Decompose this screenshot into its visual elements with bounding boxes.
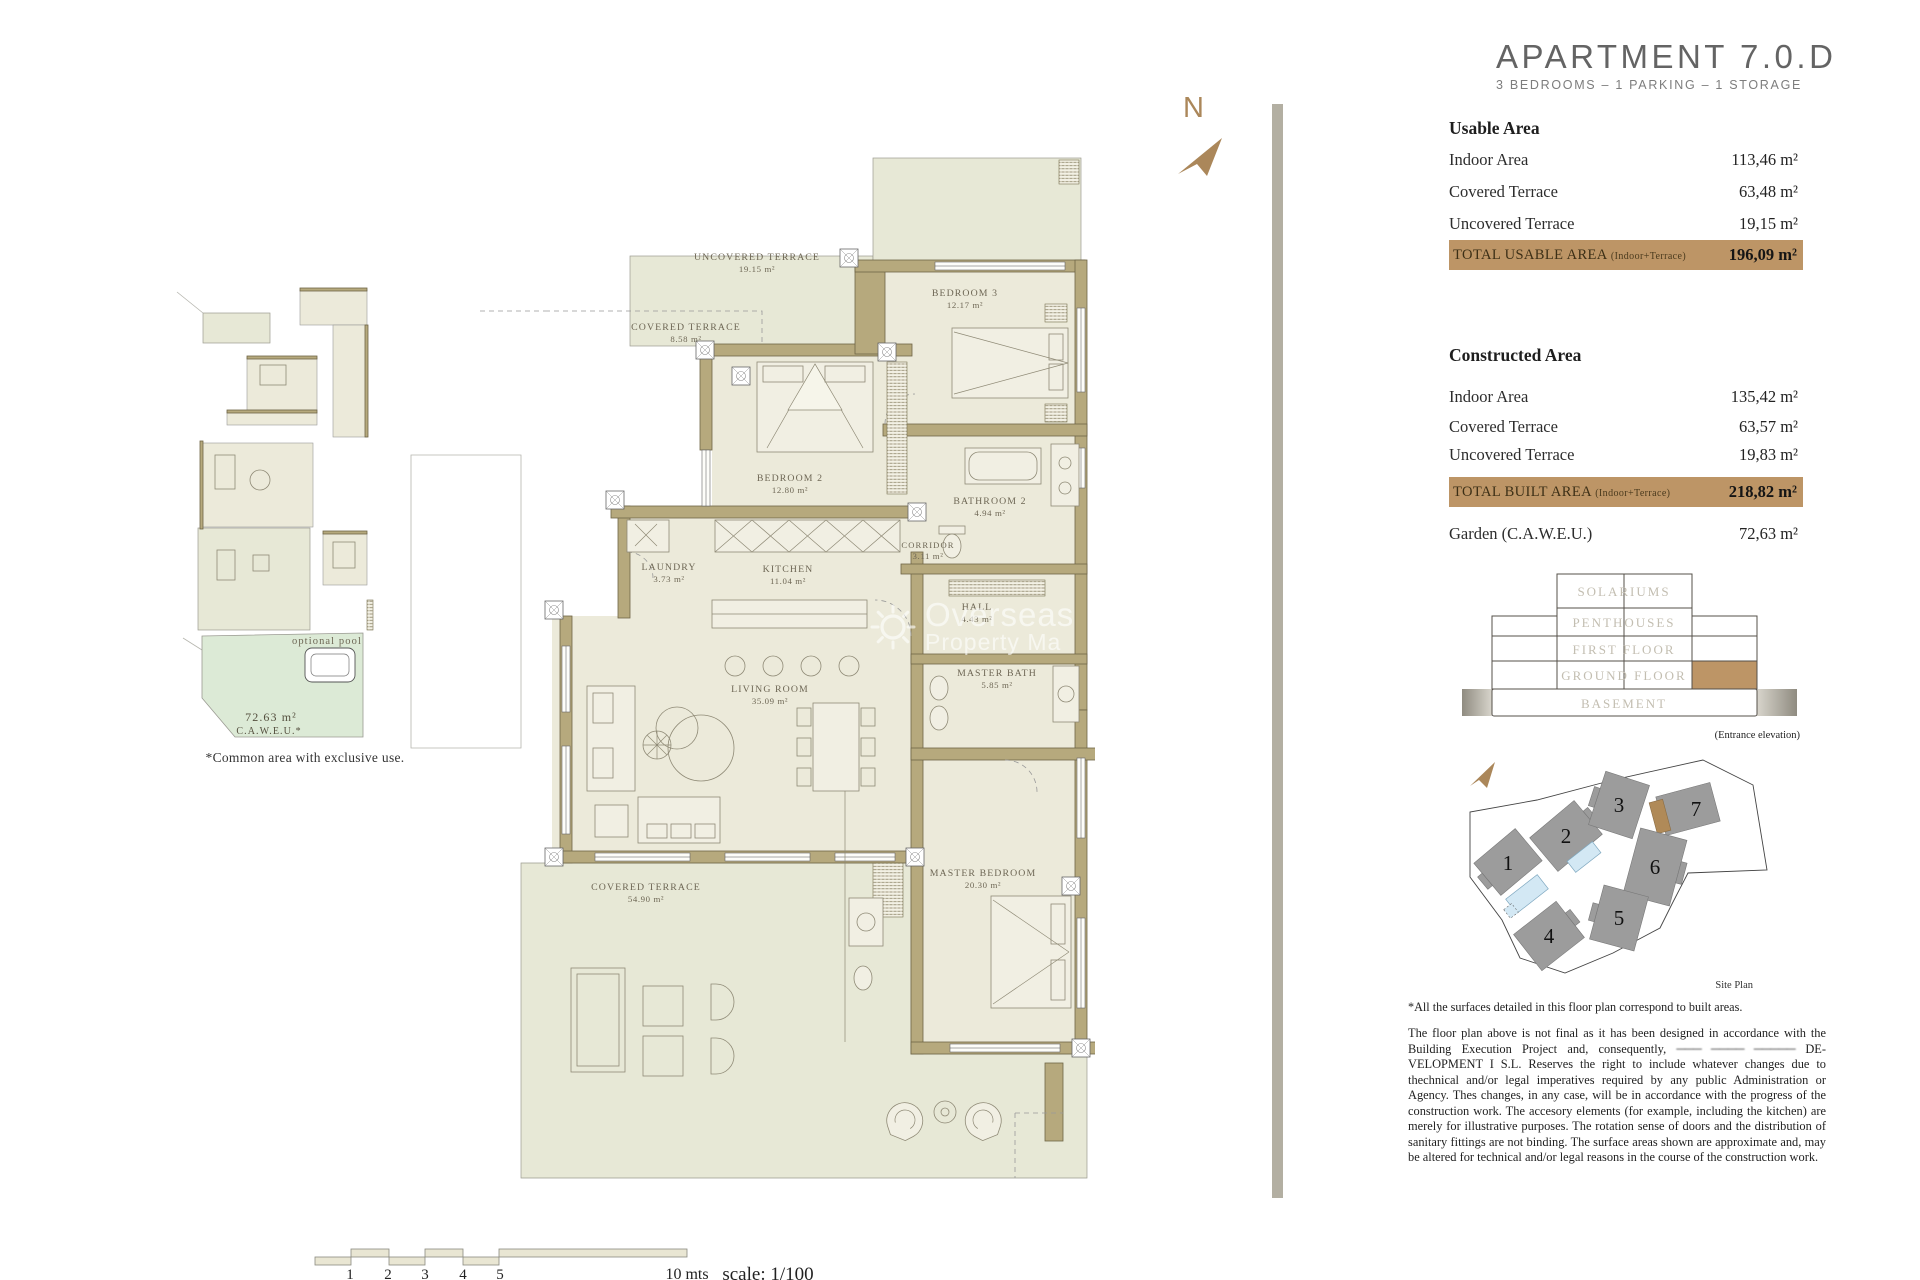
elevation-caption: (Entrance elevation) (1715, 730, 1801, 741)
svg-text:2: 2 (384, 1267, 392, 1280)
svg-text:COVERED TERRACE: COVERED TERRACE (631, 322, 741, 333)
watermark: Overseas Property Ma (870, 600, 1074, 654)
svg-text:3: 3 (1614, 793, 1625, 817)
watermark-line1: Overseas (925, 600, 1074, 630)
compass-arrow-icon (1176, 134, 1226, 180)
usable-row-covered: Covered Terrace63,48 m² (1449, 182, 1798, 202)
svg-text:5.85 m²: 5.85 m² (981, 680, 1012, 690)
mini-pool (305, 648, 355, 682)
floorplan-page: optional pool 72.63 m² C.A.W.E.U.* *Comm… (0, 0, 1920, 1280)
mini-plan-outline (177, 288, 373, 650)
svg-text:BATHROOM 2: BATHROOM 2 (953, 496, 1026, 507)
garden-row: Garden (C.A.W.E.U.)72,63 m² (1449, 524, 1798, 544)
svg-text:1: 1 (346, 1267, 354, 1280)
svg-text:SOLARIUMS: SOLARIUMS (1577, 584, 1670, 599)
svg-text:GROUND FLOOR: GROUND FLOOR (1561, 668, 1686, 683)
elevation-diagram: SOLARIUMS PENTHOUSES FIRST FLOOR GROUND … (1462, 570, 1807, 750)
scale-bar: 1 2 3 4 5 10 mts scale: 1/100 (313, 1243, 833, 1280)
svg-text:6: 6 (1650, 855, 1661, 879)
svg-text:11.04 m²: 11.04 m² (770, 576, 806, 586)
svg-text:LAUNDRY: LAUNDRY (641, 562, 696, 573)
svg-text:CORRIDOR: CORRIDOR (901, 540, 954, 550)
redacted-developer-name: ─── ──── ───── (1676, 1042, 1795, 1056)
svg-text:72.63 m²: 72.63 m² (245, 710, 297, 724)
svg-text:7: 7 (1691, 797, 1702, 821)
constructed-area-heading: Constructed Area (1449, 345, 1803, 366)
mini-plan-caption: *Common area with exclusive use. (170, 750, 440, 766)
svg-text:2: 2 (1561, 824, 1572, 848)
bed-bedroom3 (952, 328, 1068, 398)
svg-text:12.80 m²: 12.80 m² (772, 485, 808, 495)
site-plan: 1 2 3 4 5 6 7 Site Plan (1455, 750, 1810, 1005)
svg-text:BEDROOM 2: BEDROOM 2 (757, 473, 823, 484)
svg-text:12.17 m²: 12.17 m² (947, 300, 983, 310)
scale-ratio-label: scale: 1/100 (722, 1264, 813, 1280)
svg-text:1: 1 (1503, 851, 1514, 875)
svg-text:4: 4 (459, 1267, 467, 1280)
total-usable-band: TOTAL USABLE AREA (Indoor+Terrace) 196,0… (1449, 240, 1803, 270)
surfaces-note: *All the surfaces detailed in this floor… (1408, 1000, 1826, 1015)
svg-text:5: 5 (496, 1267, 504, 1280)
disclaimer-text: The floor plan above is not final as it … (1408, 1026, 1826, 1166)
svg-text:54.90 m²: 54.90 m² (628, 894, 664, 904)
page-title: APARTMENT 7.0.D (1496, 38, 1826, 76)
pool-label: optional pool (292, 636, 362, 647)
svg-text:3.73 m²: 3.73 m² (653, 574, 684, 584)
usable-row-indoor: Indoor Area113,46 m² (1449, 150, 1798, 170)
svg-text:20.30 m²: 20.30 m² (965, 880, 1001, 890)
svg-text:3.11 m²: 3.11 m² (913, 551, 944, 561)
watermark-sun-icon (870, 604, 916, 650)
svg-text:KITCHEN: KITCHEN (763, 564, 814, 575)
elevation-highlight-ground-floor (1692, 661, 1757, 689)
usable-area-heading: Usable Area (1449, 118, 1803, 139)
constructed-row-uncovered: Uncovered Terrace19,83 m² (1449, 445, 1798, 465)
bed-master-bedroom (991, 877, 1080, 1008)
site-compass-arrow-icon (1470, 762, 1495, 788)
constructed-row-indoor: Indoor Area135,42 m² (1449, 387, 1798, 407)
svg-text:35.09 m²: 35.09 m² (752, 696, 788, 706)
svg-text:PENTHOUSES: PENTHOUSES (1572, 615, 1675, 630)
svg-text:UNCOVERED TERRACE: UNCOVERED TERRACE (694, 252, 820, 263)
page-subtitle: 3 BEDROOMS – 1 PARKING – 1 STORAGE (1496, 78, 1826, 92)
site-plan-caption: Site Plan (1715, 980, 1753, 991)
svg-text:COVERED TERRACE: COVERED TERRACE (591, 882, 701, 893)
svg-text:4: 4 (1544, 924, 1555, 948)
svg-text:FIRST FLOOR: FIRST FLOOR (1572, 642, 1675, 657)
mini-plan-garden: optional pool 72.63 m² C.A.W.E.U.* (202, 633, 363, 737)
usable-row-uncovered: Uncovered Terrace19,15 m² (1449, 214, 1798, 234)
svg-text:MASTER BEDROOM: MASTER BEDROOM (930, 868, 1037, 879)
watermark-line2: Property Ma (925, 630, 1074, 654)
svg-text:5: 5 (1614, 906, 1625, 930)
total-built-band: TOTAL BUILT AREA (Indoor+Terrace) 218,82… (1449, 477, 1803, 507)
svg-text:BASEMENT: BASEMENT (1581, 696, 1667, 711)
title-block: APARTMENT 7.0.D 3 BEDROOMS – 1 PARKING –… (1496, 38, 1826, 92)
constructed-row-covered: Covered Terrace63,57 m² (1449, 417, 1798, 437)
vertical-divider (1272, 104, 1283, 1198)
svg-text:4.94 m²: 4.94 m² (974, 508, 1005, 518)
adjacent-plot-outline (411, 455, 521, 748)
svg-text:19.15 m²: 19.15 m² (739, 264, 775, 274)
mini-floor-plan: optional pool 72.63 m² C.A.W.E.U.* (165, 270, 410, 790)
svg-text:MASTER BATH: MASTER BATH (957, 668, 1037, 679)
main-floor-plan: UNCOVERED TERRACE 19.15 m² COVERED TERRA… (405, 148, 1095, 1203)
svg-text:3: 3 (421, 1267, 429, 1280)
svg-text:BEDROOM 3: BEDROOM 3 (932, 288, 998, 299)
svg-text:C.A.W.E.U.*: C.A.W.E.U.* (236, 726, 301, 737)
site-buildings: 1 2 3 4 5 6 7 (1469, 769, 1720, 970)
scale-end-label: 10 mts (665, 1266, 708, 1280)
svg-text:LIVING ROOM: LIVING ROOM (731, 684, 809, 695)
compass-n-label: N (1183, 92, 1204, 125)
svg-text:8.58 m²: 8.58 m² (670, 334, 701, 344)
